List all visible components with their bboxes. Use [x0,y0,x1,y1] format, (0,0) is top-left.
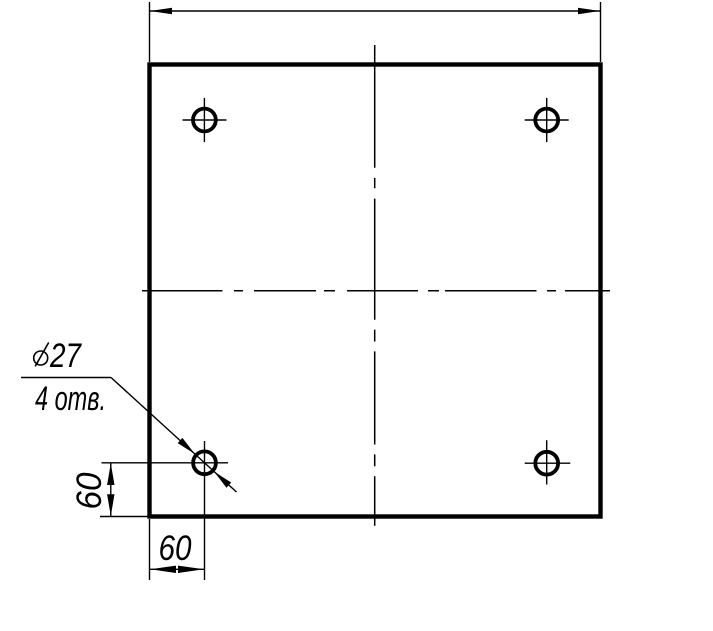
svg-text:60: 60 [70,472,109,510]
svg-text:4 отв.: 4 отв. [35,380,106,418]
svg-text:27: 27 [49,337,82,375]
svg-text:60: 60 [159,529,192,568]
